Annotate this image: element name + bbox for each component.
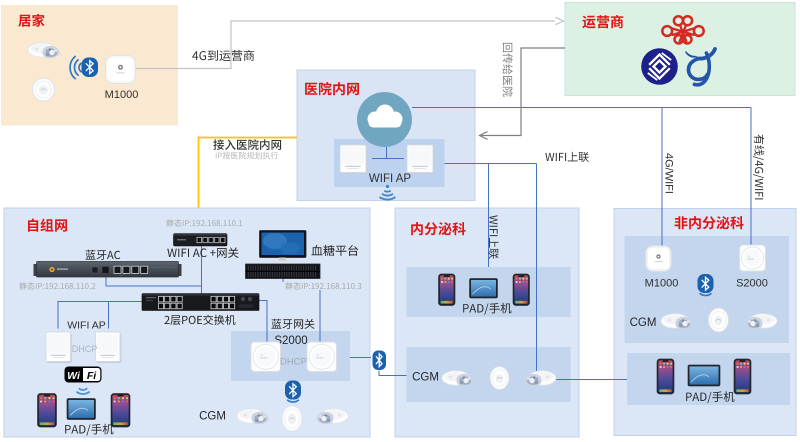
svg-text:M1000: M1000 — [105, 89, 139, 101]
svg-text:CGM: CGM — [412, 372, 439, 384]
svg-text:DHCP: DHCP — [280, 357, 307, 368]
svg-text:4G/WIFI: 4G/WIFI — [663, 153, 675, 194]
svg-text:M1000: M1000 — [645, 278, 679, 290]
svg-text:S2000: S2000 — [736, 278, 768, 290]
svg-text:WIFI AP: WIFI AP — [67, 320, 106, 332]
svg-text:CGM: CGM — [630, 317, 657, 329]
svg-text:WIFI AP: WIFI AP — [369, 173, 412, 185]
svg-text:DHCP: DHCP — [72, 344, 98, 354]
svg-text:Wi: Wi — [67, 370, 81, 382]
svg-text:Fi: Fi — [87, 370, 97, 382]
svg-text:CGM: CGM — [199, 411, 226, 423]
